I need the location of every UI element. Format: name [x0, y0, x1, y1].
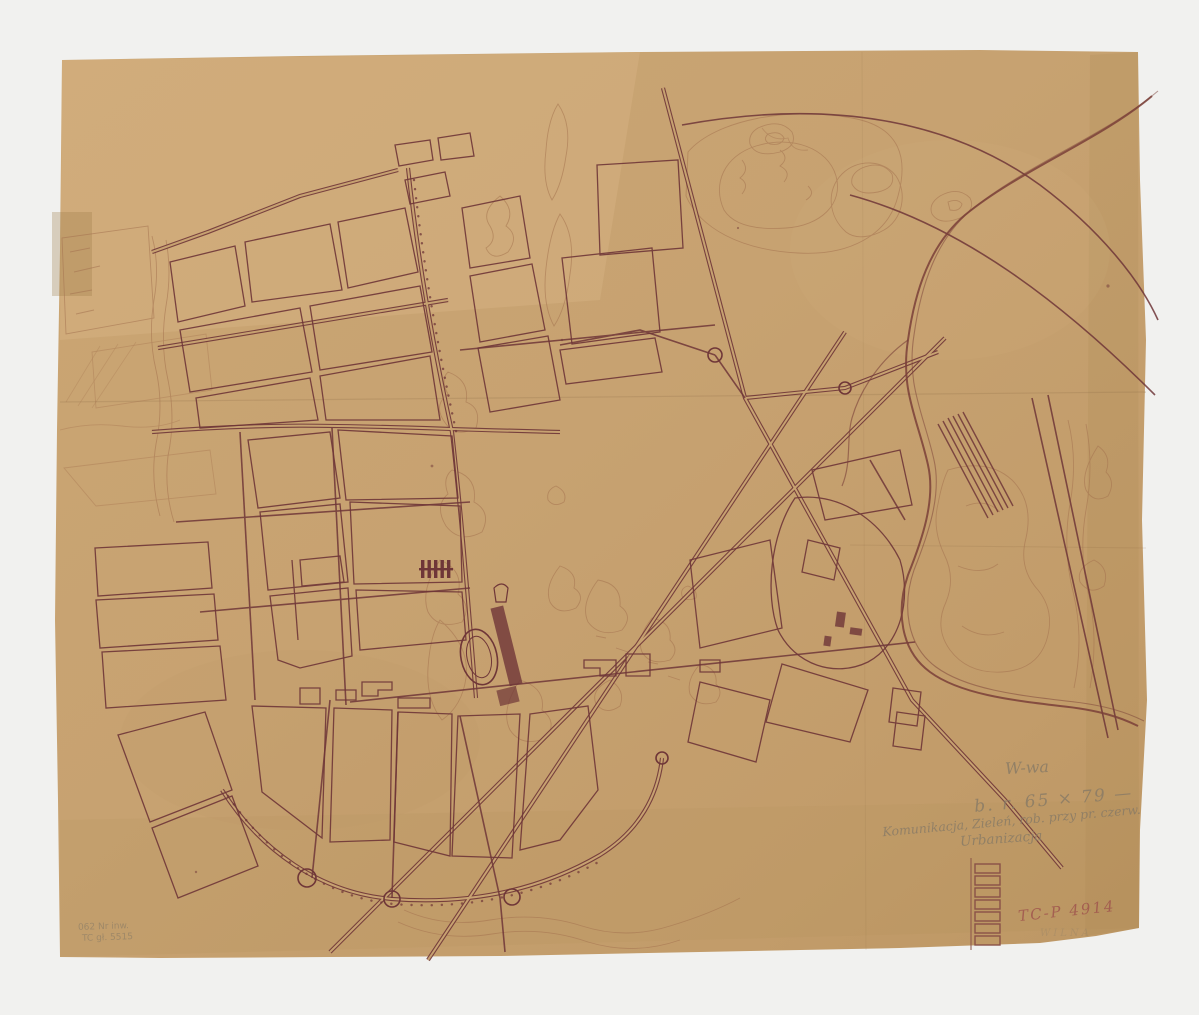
annotation-city-abbrev: W-wa	[1005, 757, 1050, 778]
annotation-inventory-line2: TC gł. 5515	[82, 932, 133, 944]
annotation-faint-stamp: WILNA	[1040, 928, 1092, 939]
comb-building	[419, 560, 453, 578]
city-plan-map	[0, 0, 1199, 1015]
paper-dark-patch	[52, 212, 92, 296]
scanned-map-sheet: W-wa b. r. 65 × 79 — Komunikacja, Zieleń…	[0, 0, 1199, 1015]
annotation-inventory-line1: 062 Nr inw.	[78, 921, 129, 933]
